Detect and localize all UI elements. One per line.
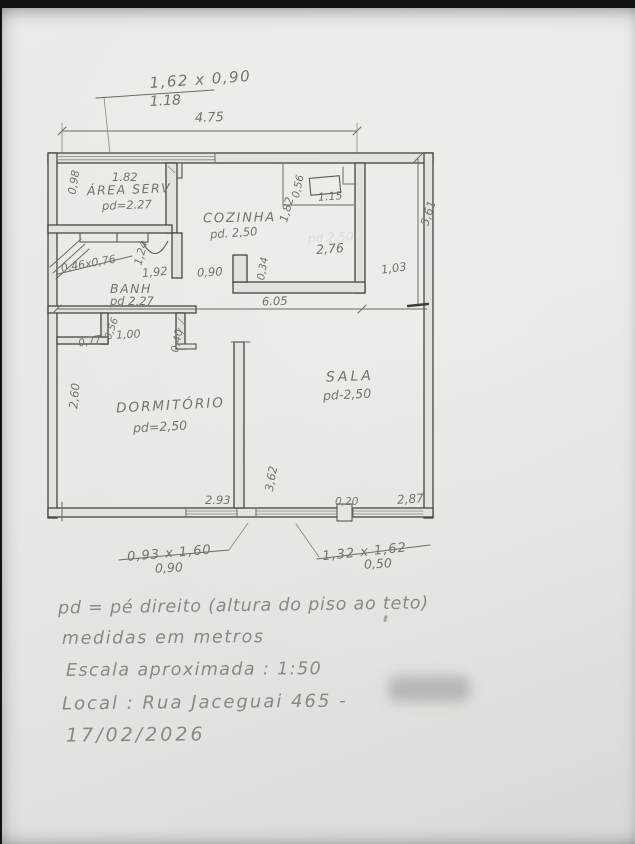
window-left-sill: 0,90 — [155, 559, 184, 575]
floor-plan-drawing: 1,62 x 0,90 1.18 4.75 1.82 0,98 ÁREA SER… — [0, 0, 635, 844]
note-location: Local : Rua Jaceguai 465 - — [62, 691, 348, 715]
dim-kitchen-door: 0,90 — [197, 264, 223, 279]
dim-dorm-width: 2.93 — [205, 493, 231, 507]
room-label-sala: SALA — [326, 368, 374, 386]
top-window-sill: 1.18 — [149, 92, 181, 110]
room-label-dormitorio: DORMITÓRIO — [116, 393, 226, 417]
dim-sala-width: 2,87 — [397, 491, 425, 507]
dim-bath-depth: 1,24 — [132, 240, 151, 267]
dim-counter: 0,34 — [255, 256, 271, 281]
dim-dorm-depth: 2,60 — [66, 383, 82, 410]
room-pd-dormitorio: pd=2,50 — [132, 418, 188, 436]
window-right-sill: 0,50 — [364, 555, 393, 571]
dim-closet-pier: 0,40 — [169, 328, 186, 354]
dim-pier: 0,20 — [335, 496, 359, 508]
room-pd-sala: pd-2,50 — [322, 386, 372, 404]
dim-kitchen-depth: 1,82 — [276, 195, 296, 223]
note-scale: Escala aproximada : 1:50 — [66, 659, 322, 681]
dim-closet-b: 1,00 — [116, 327, 141, 341]
dim-areaserv-side: 0,98 — [65, 169, 82, 195]
room-pd-cozinha: pd. 2,50 — [209, 224, 258, 241]
redacted-address-smudge — [388, 676, 470, 702]
room-pd-area-serv: pd=2.27 — [101, 197, 153, 213]
plan-labels: 1,62 x 0,90 1.18 4.75 1.82 0,98 ÁREA SER… — [60, 67, 439, 576]
dim-sala-depth: 3,62 — [262, 465, 280, 493]
dim-overall-width: 4.75 — [195, 110, 224, 126]
photo-of-floor-plan: 1,62 x 0,90 1.18 4.75 1.82 0,98 ÁREA SER… — [0, 0, 635, 844]
dim-corridor: 1,03 — [380, 259, 407, 276]
dim-niche-depth: 0,56 — [290, 174, 307, 200]
dim-closet-a: 0,77 — [77, 333, 103, 349]
note-date: 17/02/2026 — [66, 723, 206, 746]
room-label-cozinha: COZINHA — [203, 210, 276, 226]
dim-right-height: 5,61 — [417, 199, 438, 228]
room-pd-banh: pd 2,27 — [109, 294, 155, 308]
dim-bath-window: 0,46x0,76 — [60, 253, 117, 275]
dim-bath-width: 1,92 — [141, 264, 168, 280]
dim-kitchen-width: 2,76 — [316, 240, 345, 257]
dim-kitchen-run: 6.05 — [262, 294, 288, 309]
room-label-area-serv: ÁREA SERV — [86, 180, 172, 198]
note-units: medidas em metros — [62, 627, 265, 649]
dim-niche-width: 1.15 — [318, 189, 343, 204]
top-window-size: 1,62 x 0,90 — [149, 67, 252, 92]
